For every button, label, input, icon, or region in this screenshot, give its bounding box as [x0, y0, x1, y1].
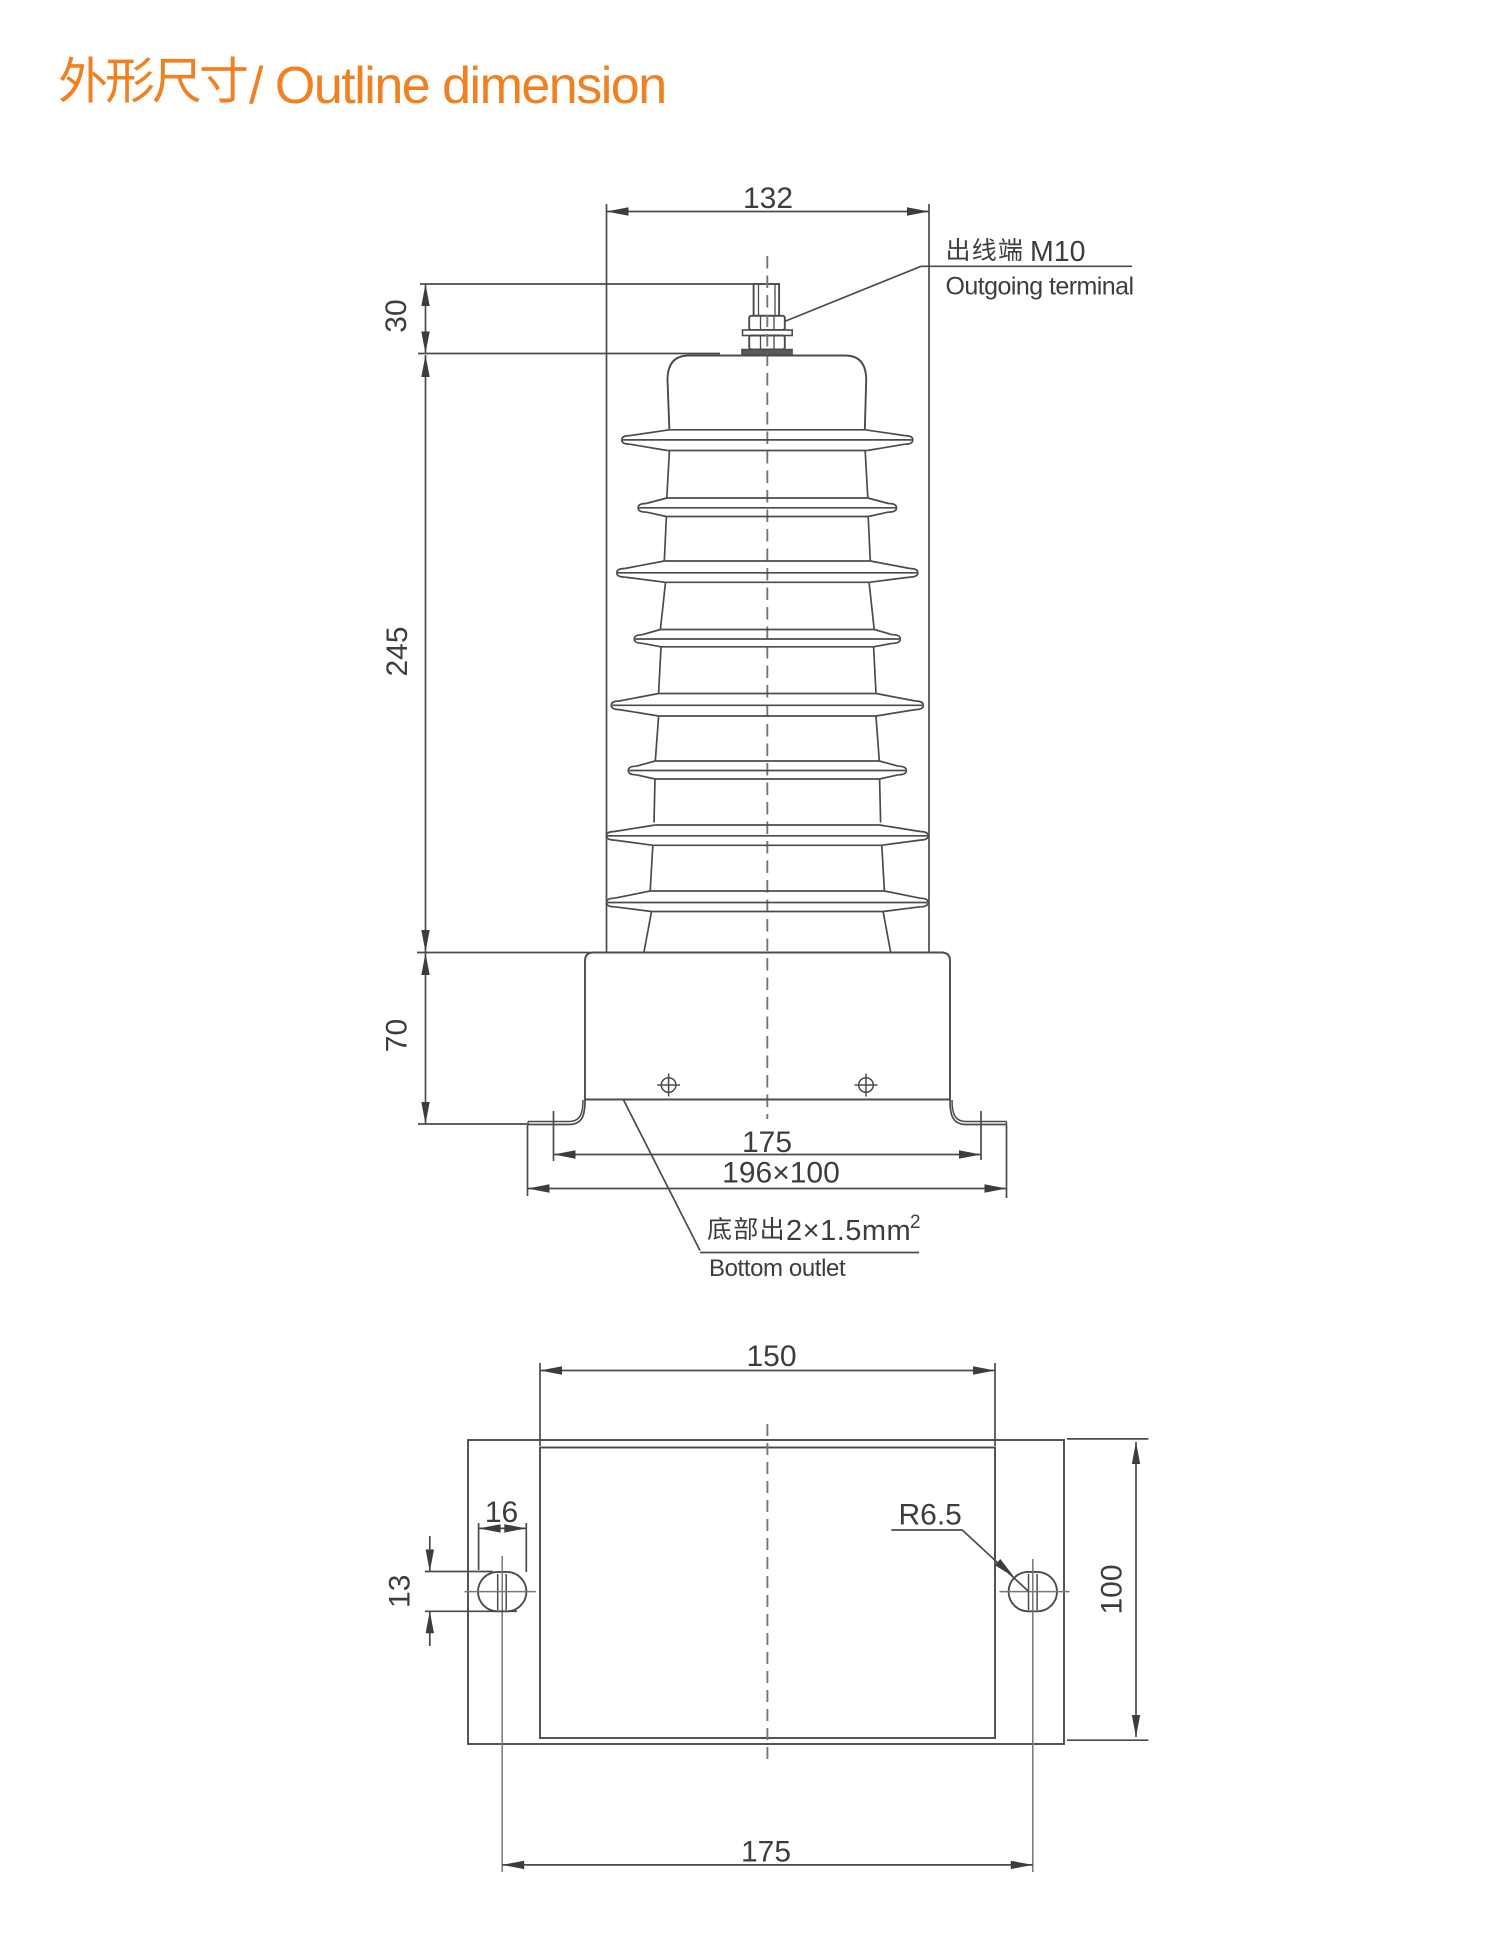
svg-text:Outgoing terminal: Outgoing terminal	[946, 273, 1134, 301]
svg-text:M10: M10	[1030, 236, 1085, 268]
svg-text:175: 175	[741, 1836, 791, 1869]
svg-text:Bottom outlet: Bottom outlet	[709, 1255, 846, 1282]
svg-text:/ Outline dimension: / Outline dimension	[249, 57, 666, 115]
svg-text:16: 16	[485, 1496, 518, 1529]
svg-text:R6.5: R6.5	[899, 1499, 962, 1532]
svg-text:100: 100	[1096, 1564, 1129, 1614]
svg-text:13: 13	[384, 1575, 417, 1608]
svg-text:2×1.5mm: 2×1.5mm	[786, 1215, 911, 1247]
svg-text:245: 245	[381, 626, 414, 676]
svg-text:30: 30	[380, 299, 413, 332]
svg-text:2: 2	[910, 1212, 921, 1233]
svg-text:70: 70	[381, 1019, 414, 1052]
svg-text:132: 132	[743, 182, 793, 215]
svg-text:196×100: 196×100	[722, 1157, 840, 1190]
svg-text:150: 150	[746, 1340, 796, 1373]
